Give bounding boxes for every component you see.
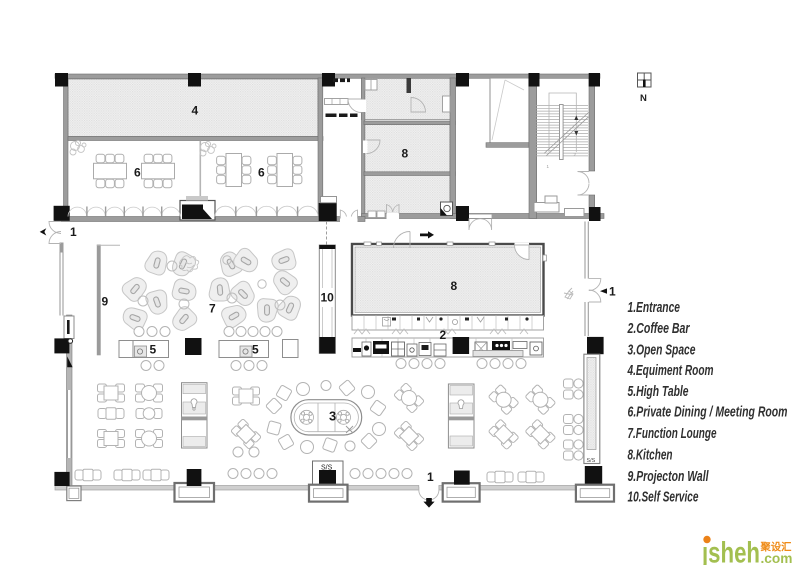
- svg-text:N: N: [640, 93, 647, 104]
- svg-text:8.Kitchen: 8.Kitchen: [628, 448, 673, 464]
- svg-text:S/S: S/S: [587, 458, 596, 464]
- svg-text:3.Open Space: 3.Open Space: [628, 343, 696, 359]
- svg-text:1: 1: [70, 225, 77, 239]
- svg-text:6.Private Dining / Meeting Roo: 6.Private Dining / Meeting Room: [628, 405, 788, 421]
- svg-text:6: 6: [134, 166, 141, 180]
- svg-text:1.Entrance: 1.Entrance: [628, 300, 681, 316]
- svg-text:9.Projecton Wall: 9.Projecton Wall: [628, 469, 710, 485]
- svg-text:6: 6: [258, 166, 265, 180]
- svg-text:8: 8: [451, 279, 458, 293]
- svg-text:7.Function Lounge: 7.Function Lounge: [628, 426, 717, 442]
- svg-text:10: 10: [321, 291, 335, 305]
- svg-text:9: 9: [102, 295, 109, 309]
- svg-text:5: 5: [252, 343, 259, 357]
- svg-text:7: 7: [209, 302, 216, 316]
- svg-text:5: 5: [150, 343, 157, 357]
- svg-text:1: 1: [427, 470, 434, 484]
- svg-text:4.Equiment Room: 4.Equiment Room: [627, 363, 714, 379]
- svg-text:1: 1: [609, 285, 616, 299]
- svg-text:3: 3: [329, 409, 336, 424]
- svg-text:5.High Table: 5.High Table: [628, 384, 689, 400]
- svg-text:2: 2: [440, 328, 447, 342]
- svg-text:10.Self Service: 10.Self Service: [628, 490, 699, 506]
- svg-text:8: 8: [402, 147, 409, 161]
- svg-text:.com: .com: [761, 550, 793, 565]
- svg-text:2.Coffee Bar: 2.Coffee Bar: [627, 321, 691, 337]
- svg-text:4: 4: [192, 104, 199, 118]
